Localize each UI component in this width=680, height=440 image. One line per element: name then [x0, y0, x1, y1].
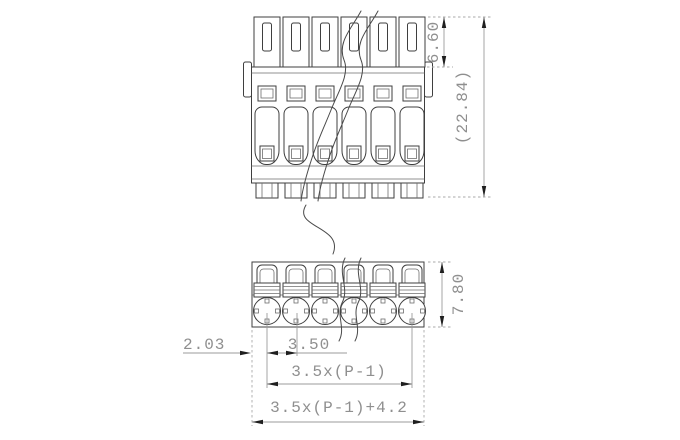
- dim-label-poles-span: 3.5x(P-1): [291, 363, 386, 381]
- terminal-block-drawing: 6.60 (22.84) 7.80 2.03 3.50 3.5x(P: [0, 0, 680, 440]
- left-latch-ear: [244, 62, 252, 97]
- dim-label-front-top-height: 6.60: [425, 21, 443, 63]
- dim-label-overall-width: 3.5x(P-1)+4.2: [270, 399, 408, 417]
- drawing-canvas: 6.60 (22.84) 7.80 2.03 3.50 3.5x(P: [0, 0, 680, 440]
- dim-label-plan-depth: 7.80: [450, 273, 468, 315]
- plan-view: [252, 258, 426, 341]
- dim-label-front-total-height: (22.84): [454, 70, 472, 144]
- dim-label-edge-to-first-pole: 2.03: [183, 336, 225, 354]
- front-elevation-view: [244, 11, 433, 254]
- dim-label-pole-pitch: 3.50: [288, 336, 330, 354]
